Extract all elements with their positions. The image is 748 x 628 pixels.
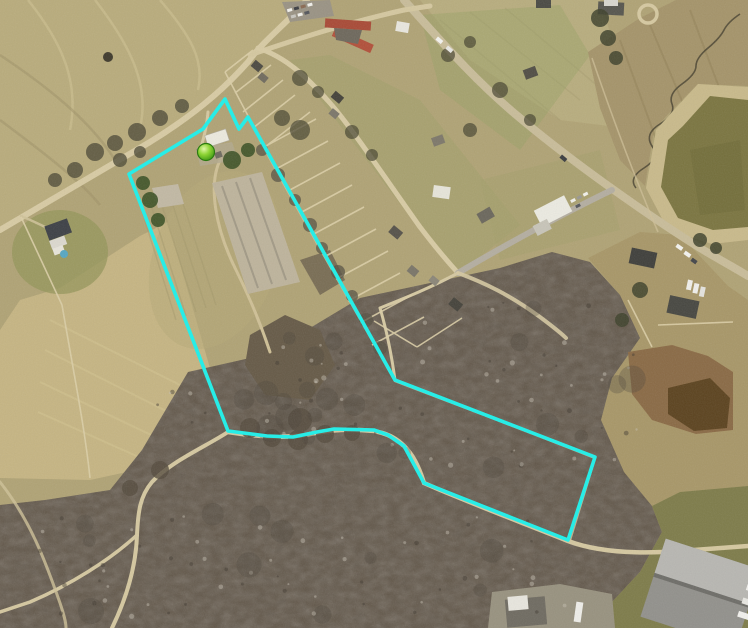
industrial-building [640,539,748,628]
sitework-layer [152,142,300,294]
subdiv-house-3 [331,91,345,104]
west-woods-path [0,482,66,628]
farm-trees [136,143,255,227]
farm-lane [214,158,270,352]
pond-deep-water [690,140,745,215]
top-edge-house [536,0,551,8]
lone-field-tree [103,52,113,62]
roads-layer [0,0,748,628]
woods-road [112,432,228,628]
map-canvas[interactable] [0,0,748,628]
plow-contours-light [28,0,200,130]
residential-street [258,48,458,273]
lot-lines-strip [225,50,424,345]
parcel-boundary[interactable] [129,99,595,540]
highway [404,0,748,276]
right-trucks [685,280,706,298]
branch-road-sw [380,273,458,380]
bottom-parking-lot [488,584,615,628]
gravel-patch [152,184,184,208]
upper-right-house-1 [523,66,539,80]
marker-circle[interactable] [198,144,215,161]
top-parking-lot [282,0,334,22]
circular-drive [639,5,657,23]
subdiv-house-8 [448,297,463,312]
subdiv-house-4 [328,108,339,119]
creek [633,14,740,188]
inner-woods-patch [245,315,335,400]
hedgerow-trees [591,9,722,327]
pond-bank [646,84,748,244]
trees-layer [38,9,722,624]
vehicles-layer [287,3,707,298]
roadside-tree-row [48,99,189,187]
west-parcel-line [21,217,90,478]
woods-texture [0,240,748,628]
valley-edge-trees [122,408,360,496]
office-building-white [534,195,572,226]
subdiv-house-5 [388,225,403,240]
subdiv-house-7 [428,275,439,286]
office-building-annex [533,219,552,236]
west-house-trim [49,236,67,250]
northeast-field [420,0,640,130]
house-lawn [12,210,108,294]
rough-scrub-field [588,232,748,506]
woods-road-branch [0,535,137,612]
bottom-building [505,596,547,627]
office-lawn [480,150,620,260]
top-connector-road [250,6,430,55]
right-parcel-lines [628,300,733,347]
dirt-area-light [628,345,733,434]
rubble-patch [212,172,300,294]
parcel-lines-layer [21,50,733,478]
bright-wheat-field [0,222,228,480]
inner-woods-patch-2 [300,250,345,295]
upper-right-house-2 [431,134,445,147]
pond-water [661,96,748,230]
wooded-hollow [0,252,662,628]
west-house-roof [44,218,72,240]
lower-subdivision-lines [374,318,462,347]
grass-bottom-right [596,486,748,628]
bottom-truck [574,602,584,623]
plow-contours-dark [0,55,115,205]
gray-road [458,190,612,273]
subdivision-lawns [290,55,520,273]
subdiv-house-1 [251,60,264,73]
woods-speckles [38,301,646,624]
dirt-area-dark [668,378,730,431]
red-roof-building-wing-b [332,28,374,53]
gray-building-top [598,1,625,15]
boundary-farm-path [260,140,595,540]
upper-right-trees [274,36,536,161]
red-building-courtyard [334,28,362,44]
west-road [0,0,307,230]
parking-cars [287,3,315,19]
location-marker[interactable] [198,144,215,161]
field-base [0,0,748,628]
swimming-pool [60,250,68,258]
gis-overlay-layer [129,99,595,540]
driveway-west-house [21,216,56,233]
farm-hut [214,151,223,159]
woods-layer [0,240,748,628]
highway-cars [435,37,697,265]
plowed-field [0,0,310,230]
bottom-valley-road [228,430,748,553]
field-streaks [440,8,600,120]
marsh-edge-line [592,58,658,232]
bottom-building-white [507,595,528,611]
marsh-field [588,0,748,186]
buildings-layer [44,0,748,628]
subdiv-house-6 [407,265,420,278]
aerial-map-viewport[interactable] [0,0,748,628]
imagery-grain [0,0,748,628]
upper-lobe-pale-field [125,152,304,367]
red-roof-building-wing-a [325,18,372,30]
west-garage [52,245,65,255]
white-house-topright [395,21,410,33]
right-dark-building-1 [629,247,658,268]
marsh-streaks [620,10,720,150]
mid-white-barn [432,185,451,199]
gray-building-top-white [604,0,618,6]
branch-road-se [458,273,566,338]
mow-lines-bright-field [38,320,190,462]
mid-house [476,207,494,224]
upper-right-lawn [420,5,590,150]
subdiv-house-2 [257,72,268,83]
office-cars [570,192,591,210]
rubble-rows [222,178,286,288]
right-dark-building-2 [666,295,699,319]
fields-layer [0,0,748,628]
